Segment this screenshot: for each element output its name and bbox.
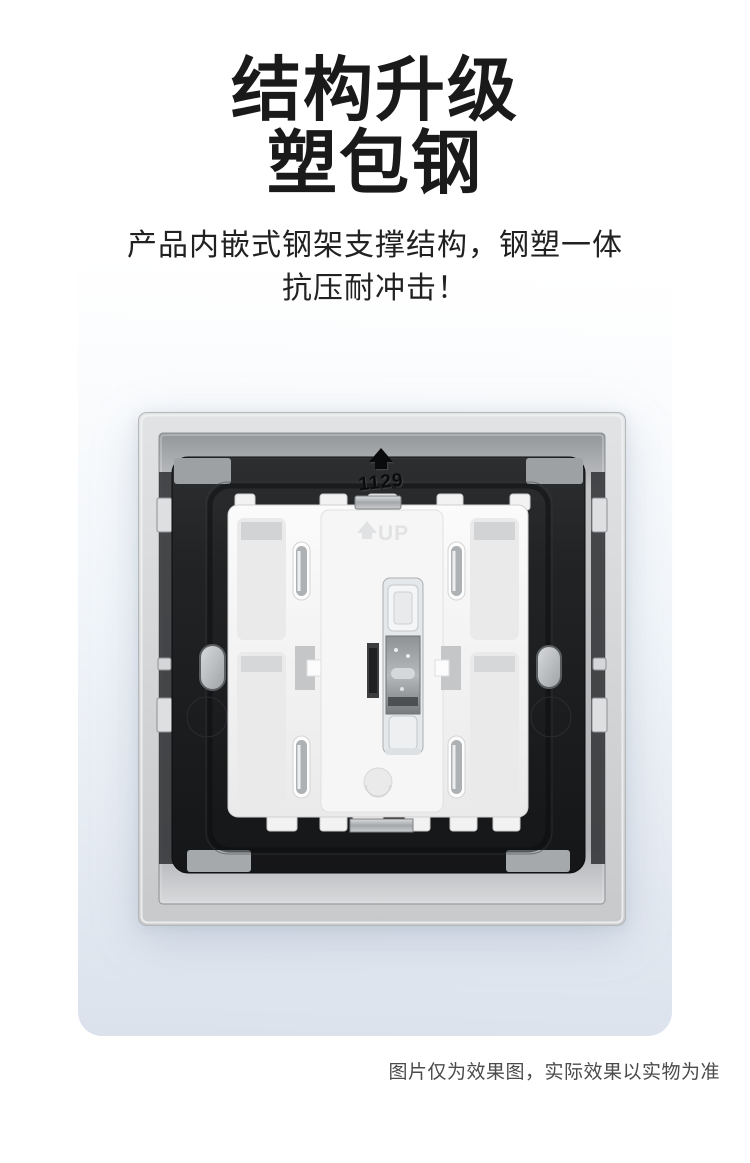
subtitle: 产品内嵌式钢架支撑结构，钢塑一体 抗压耐冲击！ <box>78 224 672 310</box>
module-center-panel <box>321 510 443 812</box>
subtitle-line-2: 抗压耐冲击！ <box>282 272 468 305</box>
product-photo: 1129 1129 <box>138 412 626 926</box>
promo-card: 结构升级 塑包钢 产品内嵌式钢架支撑结构，钢塑一体 抗压耐冲击！ <box>78 0 672 1036</box>
title-line-1: 结构升级 <box>231 51 519 129</box>
plate-notch <box>174 458 231 484</box>
plate-notch <box>506 850 570 872</box>
subtitle-line-1: 产品内嵌式钢架支撑结构，钢塑一体 <box>127 229 623 262</box>
plate-notch <box>187 850 251 872</box>
plate-notch <box>526 458 583 484</box>
locator-dimple <box>364 768 392 797</box>
page-title: 结构升级 塑包钢 <box>78 54 672 200</box>
rocker-lever <box>383 578 423 755</box>
screw-hole-left <box>200 645 225 690</box>
title-line-2: 塑包钢 <box>267 124 483 202</box>
disclaimer-text: 图片仅为效果图，实际效果以实物为准 <box>388 1060 720 1086</box>
switch-back-illustration: 1129 1129 <box>138 412 626 926</box>
promo-page: 结构升级 塑包钢 产品内嵌式钢架支撑结构，钢塑一体 抗压耐冲击！ <box>0 0 750 1163</box>
metal-clip-top <box>355 496 401 509</box>
screw-hole-right <box>537 646 561 688</box>
metal-clip-bottom <box>350 819 413 832</box>
latch-slot-core <box>369 648 377 693</box>
switch-module: UP <box>228 494 530 832</box>
up-label: UP <box>378 522 409 545</box>
